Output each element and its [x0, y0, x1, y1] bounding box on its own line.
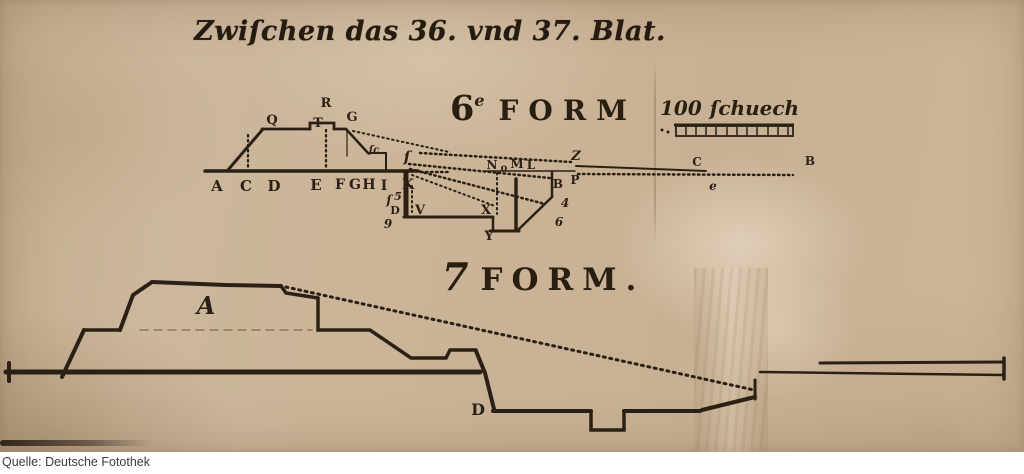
label-E: E — [310, 176, 321, 194]
label-4: 4 — [561, 196, 569, 210]
label-G: G — [349, 177, 361, 193]
covered-way-dotted — [578, 174, 793, 175]
glacis-lower-line — [760, 372, 1004, 375]
label-sc: ſc — [368, 145, 379, 156]
form6-profile-drawing — [205, 123, 793, 231]
caption-text: Quelle: Deutsche Fotothek — [2, 455, 150, 469]
label-H: H — [362, 177, 375, 193]
label-6: 6 — [555, 215, 564, 229]
label-B: B — [553, 177, 563, 191]
caption-bar: Quelle: Deutsche Fotothek — [0, 452, 1024, 474]
scanned-page: Zwiſchen das 36. vnd 37. Blat. 6eFORM 10… — [0, 0, 1024, 452]
label-G-top: G — [346, 110, 357, 125]
label-M: M — [510, 157, 523, 171]
covered-way-line — [576, 166, 706, 171]
scale-bar-body — [676, 126, 793, 136]
label-Y: Y — [483, 229, 494, 244]
label-R: R — [321, 96, 332, 111]
sight-line-dotted — [286, 287, 754, 390]
label-9: 9 — [384, 217, 393, 231]
label-e: e — [709, 179, 717, 193]
label-D: D — [267, 177, 280, 195]
label-L: L — [527, 158, 536, 172]
label-P: P — [570, 173, 579, 187]
label-Z: Z — [570, 149, 581, 164]
label-C-right: C — [692, 155, 702, 169]
form7-letter-labels: A D — [195, 291, 485, 419]
counterscarp-slope — [702, 397, 755, 410]
label-I: I — [381, 178, 388, 194]
label-F: F — [335, 177, 345, 193]
rampart-right-edge — [318, 298, 476, 358]
label-o: o — [501, 163, 508, 174]
label-B-right: B — [805, 154, 815, 168]
cunette-notch — [591, 411, 624, 430]
label-D: D — [471, 400, 485, 419]
label-T: T — [313, 116, 323, 131]
label-X: X — [481, 203, 492, 218]
scale-bar-divisions — [686, 127, 788, 135]
glacis-upper-line — [820, 362, 1003, 363]
upper-slope — [120, 282, 152, 330]
rampart-left-slope — [228, 129, 263, 170]
label-V: V — [414, 203, 426, 218]
engraving-diagram: Q R T G A C D E F G H I K ſ ſc ſ 5 D 9 V — [0, 0, 1024, 452]
label-Q: Q — [266, 113, 277, 128]
scale-bar-dot — [667, 131, 670, 134]
document-scan: Zwiſchen das 36. vnd 37. Blat. 6eFORM 10… — [0, 0, 1024, 474]
scale-bar-dot — [661, 129, 664, 132]
label-5: 5 — [394, 190, 402, 203]
label-N: N — [487, 158, 498, 172]
scale-bar — [661, 125, 795, 136]
rampart-top-line — [152, 282, 281, 286]
sight-line-dotted-short — [353, 131, 449, 152]
label-C: C — [240, 177, 252, 195]
label-A: A — [195, 291, 216, 320]
label-A: A — [210, 177, 223, 195]
label-D-small: D — [390, 204, 400, 217]
label-K: K — [402, 177, 415, 193]
form7-profile-drawing — [6, 282, 1004, 430]
